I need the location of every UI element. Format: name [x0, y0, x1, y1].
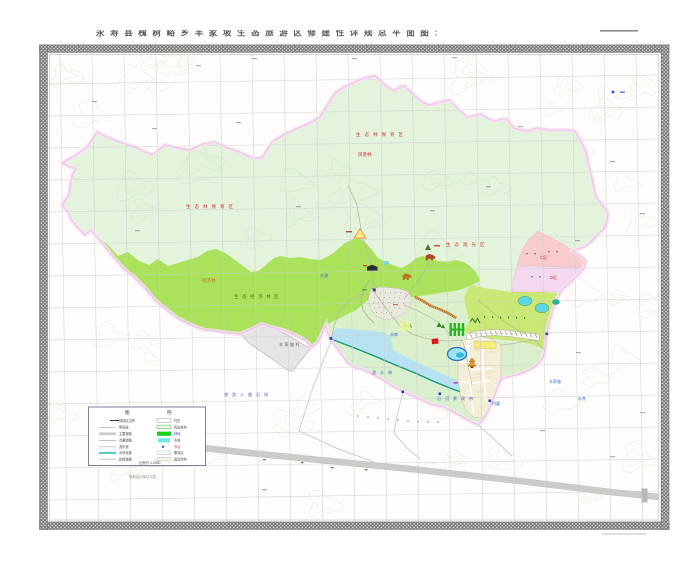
svg-text:水域: 水域 [174, 438, 181, 443]
svg-text:比例尺 1:2000: 比例尺 1:2000 [139, 460, 161, 465]
svg-text:旅游公路沿线: 旅游公路沿线 [224, 391, 272, 397]
svg-text:风景林: 风景林 [358, 151, 372, 158]
svg-text:水利设施: 水利设施 [119, 450, 133, 455]
svg-text:主要道路: 主要道路 [119, 431, 133, 436]
svg-text:次要道路: 次要道路 [119, 438, 133, 443]
svg-text:丰家坡村: 丰家坡村 [279, 341, 301, 347]
svg-text:例: 例 [167, 409, 172, 416]
svg-text:水源: 水源 [320, 272, 328, 278]
svg-text:建设用地: 建设用地 [174, 457, 188, 462]
svg-text:风景林地: 风景林地 [174, 425, 188, 430]
svg-text:生态林保育区: 生态林保育区 [356, 131, 407, 138]
svg-text:等高线: 等高线 [119, 425, 129, 430]
svg-text:C区: C区 [540, 255, 547, 260]
svg-text:其他道路: 其他道路 [119, 457, 133, 462]
svg-text:游步道: 游步道 [119, 444, 129, 449]
svg-text:水井: 水井 [578, 395, 586, 401]
svg-text:林地: 林地 [174, 431, 181, 436]
svg-text:滨水带: 滨水带 [372, 369, 396, 375]
svg-text:村庄: 村庄 [174, 418, 181, 423]
svg-text:节点: 节点 [174, 444, 181, 449]
svg-text:沿河景观带: 沿河景观带 [437, 395, 477, 401]
svg-text:规划区边界: 规划区边界 [119, 418, 136, 423]
svg-text:D区: D区 [550, 275, 557, 280]
svg-text:生态林保育区: 生态林保育区 [186, 203, 237, 210]
svg-text:生态观光区: 生态观光区 [446, 241, 489, 248]
svg-text:丰家坡: 丰家坡 [549, 378, 561, 384]
svg-text:规划设计单位示意: 规划设计单位示意 [129, 474, 157, 479]
svg-text:水库: 水库 [390, 331, 398, 337]
svg-text:经济林: 经济林 [202, 277, 216, 284]
svg-text:服务区: 服务区 [174, 450, 184, 455]
svg-text:村委: 村委 [492, 400, 500, 406]
svg-text:生态经济林区: 生态经济林区 [234, 293, 282, 300]
